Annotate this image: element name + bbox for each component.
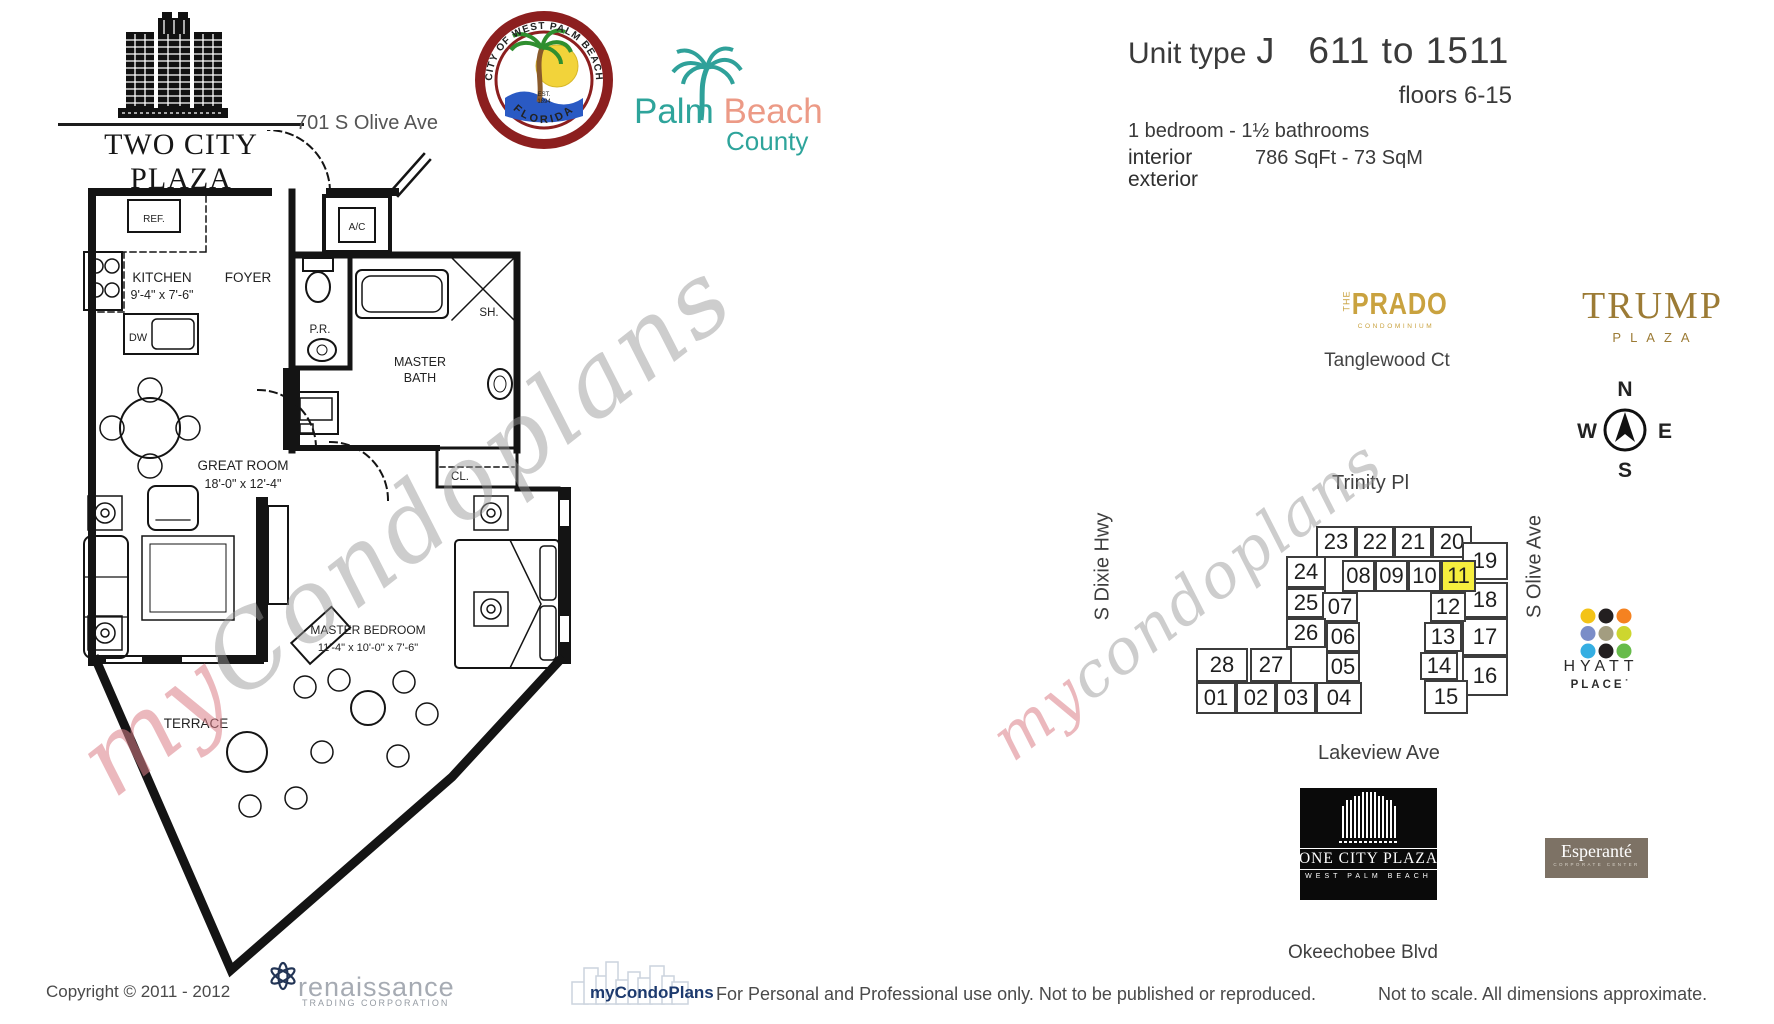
map-unit-24: 24 (1286, 556, 1326, 588)
street-lakeview-ave: Lakeview Ave (1318, 742, 1440, 765)
svg-text:1894: 1894 (537, 99, 551, 105)
map-unit-07: 07 (1322, 592, 1358, 622)
compass-rose: N S W E (1575, 378, 1675, 478)
street-okeechobee-blvd: Okeechobee Blvd (1288, 942, 1438, 964)
map-unit-02: 02 (1236, 682, 1276, 714)
map-unit-26: 26 (1286, 618, 1326, 648)
map-unit-28: 28 (1196, 648, 1248, 682)
one-city-plaza-name: ONE CITY PLAZA (1297, 848, 1440, 870)
map-unit-05: 05 (1326, 652, 1360, 682)
map-unit-12: 12 (1430, 592, 1466, 622)
unit-header: Unit type J 611 to 1511 (1128, 30, 1509, 72)
interior-label: interior (1128, 146, 1192, 170)
map-unit-22: 22 (1356, 526, 1394, 558)
unit-range: 611 to 1511 (1308, 30, 1509, 72)
prado-logo: THE PRADO CONDOMINIUM (1342, 286, 1450, 330)
prado-sub: CONDOMINIUM (1342, 323, 1450, 330)
map-unit-08: 08 (1342, 560, 1375, 592)
map-unit-03: 03 (1276, 682, 1316, 714)
ac-label: A/C (349, 222, 366, 233)
compass-s: S (1618, 459, 1632, 478)
svg-text:BATH: BATH (404, 371, 436, 385)
shower-label: SH. (479, 307, 498, 319)
map-unit-11: 11 (1441, 560, 1476, 592)
map-unit-17: 17 (1462, 618, 1508, 656)
hyatt-wordmark: HYATT (1556, 658, 1646, 676)
street-s-olive-ave: S Olive Ave (1524, 507, 1547, 627)
prado-the: THE (1342, 291, 1352, 312)
kitchen-label: KITCHEN (132, 270, 191, 285)
one-city-plaza-logo: ONE CITY PLAZA WEST PALM BEACH (1300, 788, 1437, 900)
street-s-dixie-hwy: S Dixie Hwy (1092, 507, 1115, 627)
map-unit-27: 27 (1250, 648, 1292, 682)
two-city-plaza-building-icon (118, 10, 228, 122)
compass-e: E (1658, 420, 1672, 443)
tanglewood-ct-label: Tanglewood Ct (1322, 350, 1452, 372)
usage-disclaimer: For Personal and Professional use only. … (716, 984, 1316, 1005)
one-city-plaza-sub: WEST PALM BEACH (1305, 873, 1432, 880)
master-bedroom-label: MASTER BEDROOM (310, 623, 425, 637)
dw-label: DW (129, 332, 148, 344)
map-unit-25: 25 (1286, 588, 1326, 618)
map-unit-21: 21 (1394, 526, 1432, 558)
ref-label: REF. (143, 214, 165, 225)
site-map: 2322212019181716240809101125071226061305… (1080, 460, 1560, 790)
street-trinity-pl: Trinity Pl (1332, 472, 1409, 495)
map-unit-06: 06 (1326, 622, 1360, 652)
terrace-label: TERRACE (164, 716, 229, 731)
floors-range: floors 6-15 (1260, 82, 1512, 110)
one-city-plaza-building-icon (1337, 788, 1401, 846)
exterior-label: exterior (1128, 168, 1198, 192)
closet-label: CL. (451, 471, 469, 483)
scale-disclaimer: Not to scale. All dimensions approximate… (1378, 984, 1707, 1005)
map-unit-13: 13 (1424, 622, 1462, 652)
kitchen-dims: 9'-4" x 7'-6" (131, 288, 194, 302)
prado-name: PRADO (1352, 286, 1441, 322)
foyer-label: FOYER (225, 270, 272, 285)
trump-plaza-logo: TRUMP PLAZA (1580, 284, 1725, 345)
unit-type-label: Unit type (1128, 37, 1246, 71)
hyatt-place-dots-icon (1578, 606, 1634, 660)
unit-type-value: J (1256, 30, 1274, 72)
map-unit-09: 09 (1375, 560, 1408, 592)
map-unit-10: 10 (1408, 560, 1441, 592)
compass-n: N (1617, 378, 1632, 401)
renaissance-sub: TRADING CORPORATION (302, 998, 449, 1008)
great-room-label: GREAT ROOM (197, 458, 288, 473)
map-unit-16: 16 (1462, 656, 1508, 696)
map-unit-15: 15 (1424, 680, 1468, 714)
unit-floorplan-drawing: REF. A/C KITCHEN 9'-4" x 7'-6" FOYER DW … (60, 130, 640, 990)
seal-est: EST. (538, 92, 551, 98)
hyatt-place-wordmark: PLACE˙ (1556, 679, 1646, 691)
interior-value: 786 SqFt - 73 SqM (1255, 147, 1423, 170)
floorplan-sheet: TWO CITY PLAZA 701 S Olive Ave EST. 1894… (0, 0, 1774, 1024)
master-bath-label: MASTER (394, 355, 446, 369)
bed-bath-info: 1 bedroom - 1½ bathrooms (1128, 120, 1369, 143)
map-unit-04: 04 (1316, 682, 1362, 714)
powder-room-label: P.R. (310, 324, 331, 336)
logo-rule (58, 123, 304, 126)
county-word: County (726, 126, 808, 157)
esperante-logo: Esperanté CORPORATE CENTER (1545, 838, 1648, 878)
map-unit-23: 23 (1316, 526, 1356, 558)
great-room-dims: 18'-0" x 12'-4" (205, 477, 282, 491)
map-unit-01: 01 (1196, 682, 1236, 714)
compass-w: W (1577, 420, 1597, 443)
map-unit-14: 14 (1420, 652, 1458, 680)
master-bedroom-dims: 11'-4" x 10'-0" x 7'-6" (318, 642, 418, 654)
